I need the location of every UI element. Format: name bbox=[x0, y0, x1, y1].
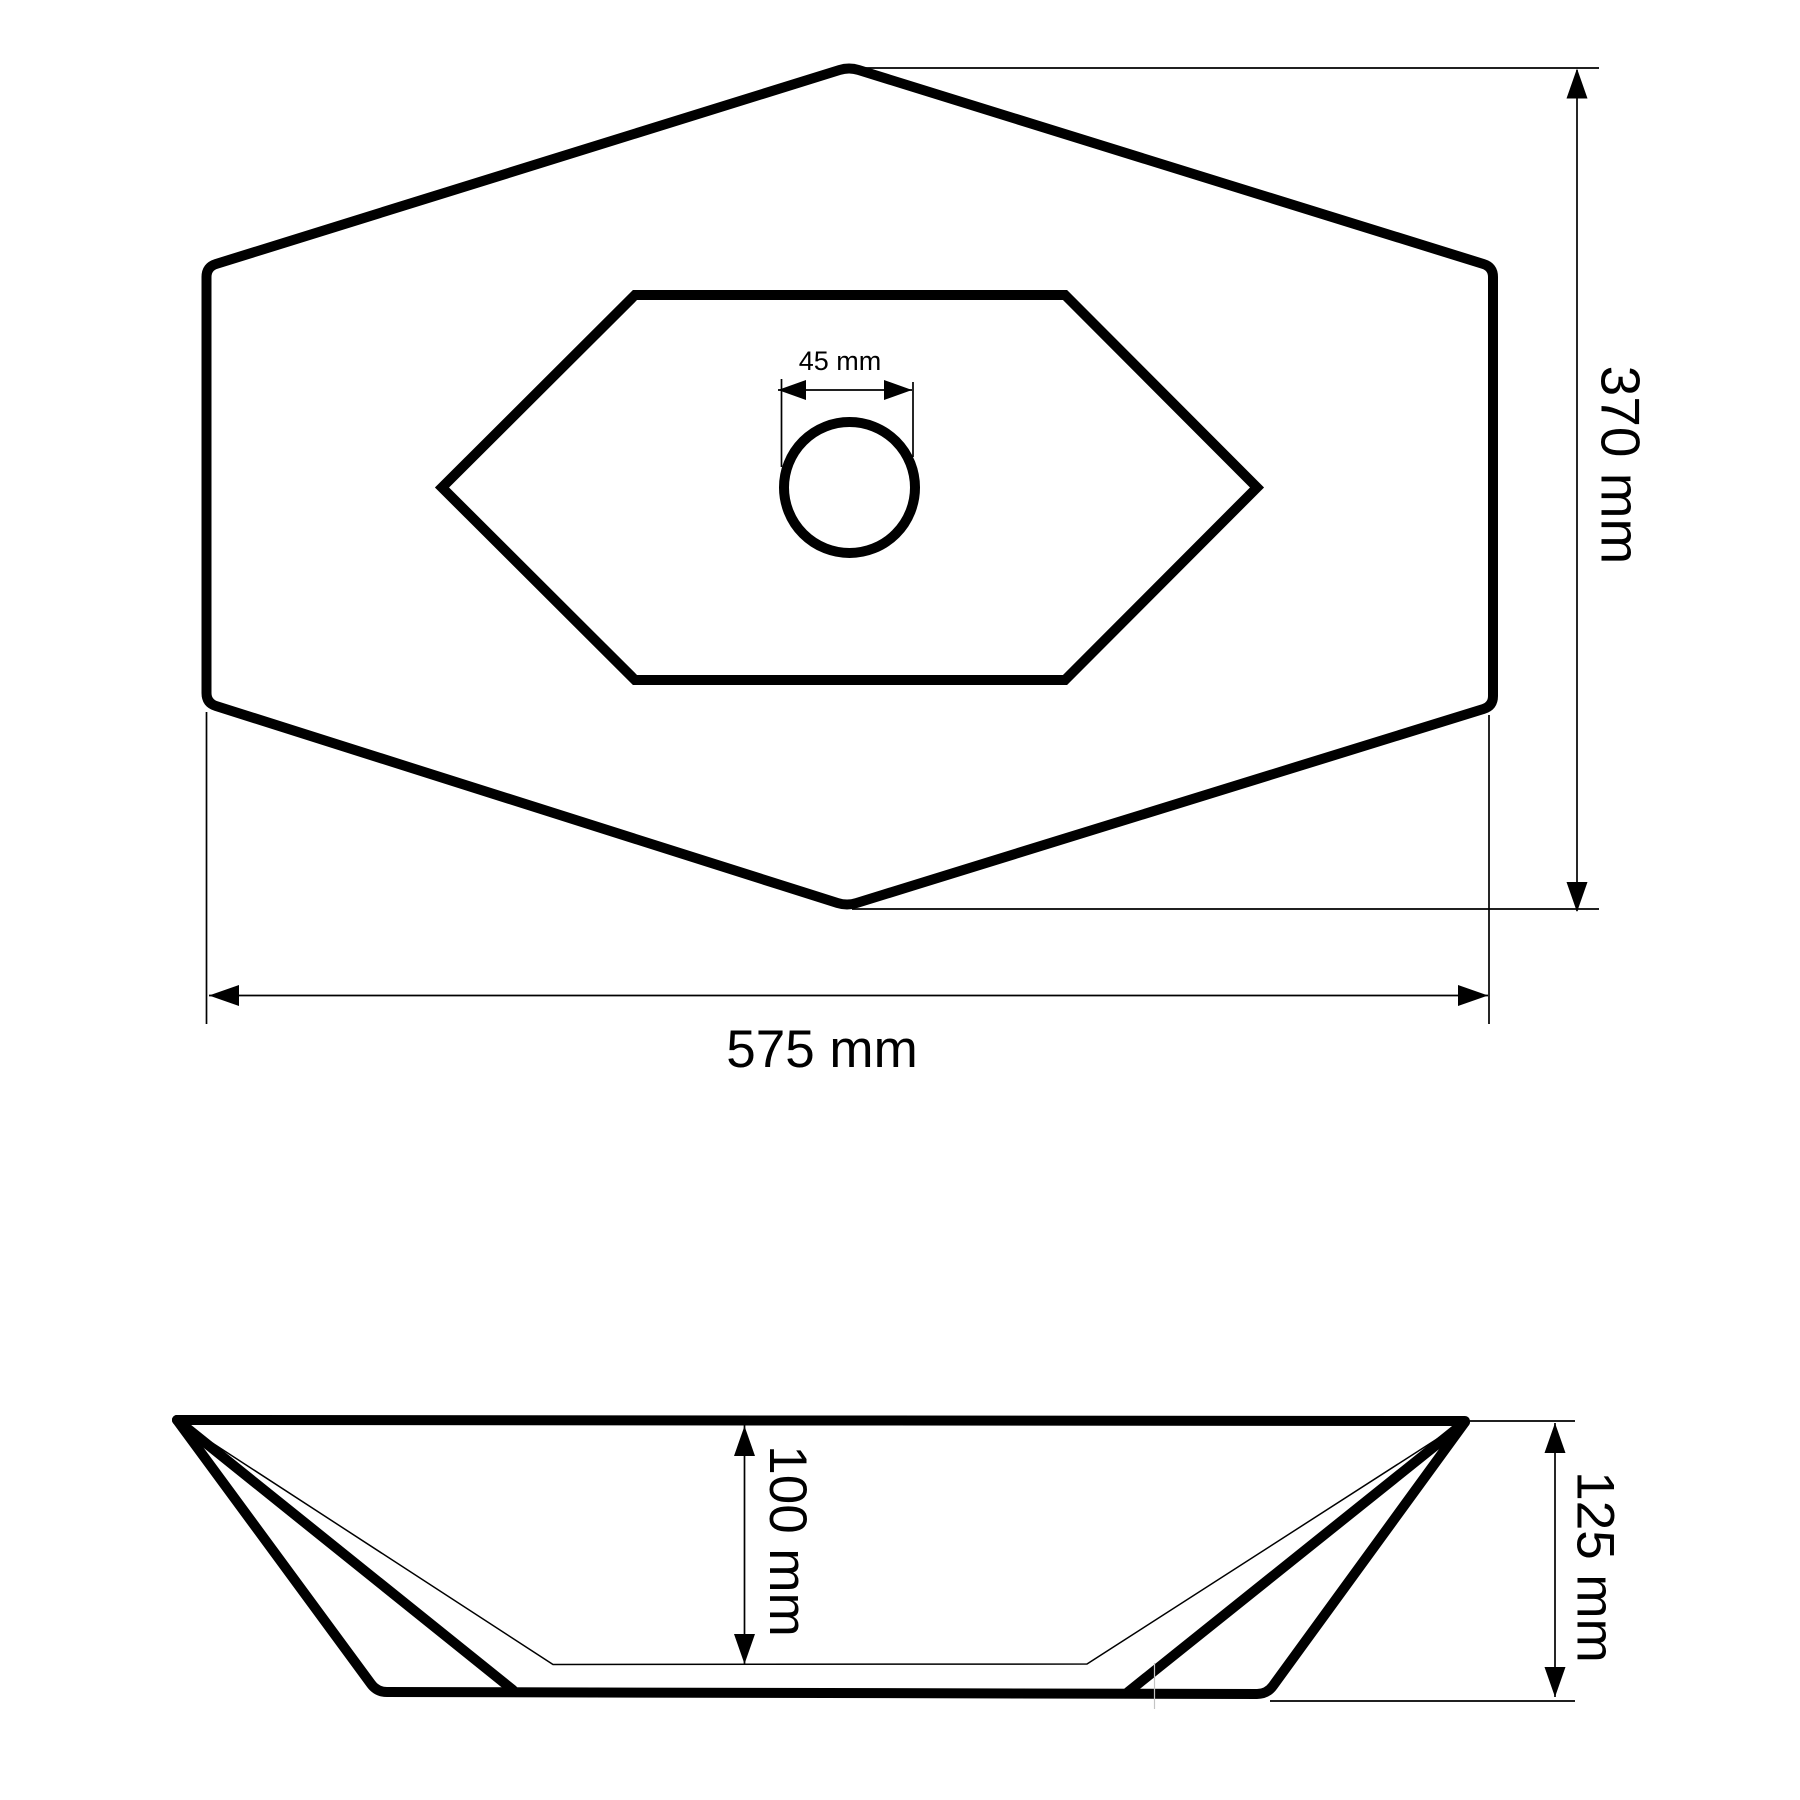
svg-text:575 mm: 575 mm bbox=[726, 1020, 917, 1079]
svg-text:370 mm: 370 mm bbox=[1589, 366, 1651, 565]
svg-text:125 mm: 125 mm bbox=[1566, 1471, 1625, 1662]
svg-text:100 mm: 100 mm bbox=[758, 1445, 817, 1636]
svg-text:45 mm: 45 mm bbox=[799, 346, 882, 376]
